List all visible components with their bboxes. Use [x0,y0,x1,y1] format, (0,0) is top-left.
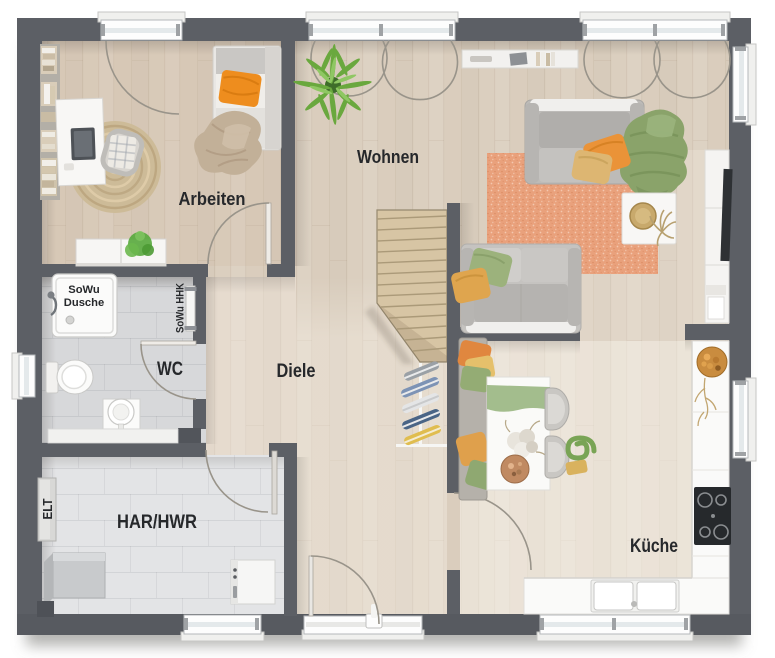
svg-text:Wohnen: Wohnen [357,146,419,167]
svg-text:Küche: Küche [630,536,678,557]
svg-text:Dusche: Dusche [64,297,104,309]
svg-text:WC: WC [157,358,183,380]
svg-text:HAR/HWR: HAR/HWR [117,512,197,533]
svg-text:SoWu HHK: SoWu HHK [175,283,187,333]
svg-text:ELT: ELT [41,498,55,519]
svg-text:Arbeiten: Arbeiten [179,189,246,209]
svg-text:Diele: Diele [277,360,316,382]
svg-text:SoWu: SoWu [68,284,100,296]
